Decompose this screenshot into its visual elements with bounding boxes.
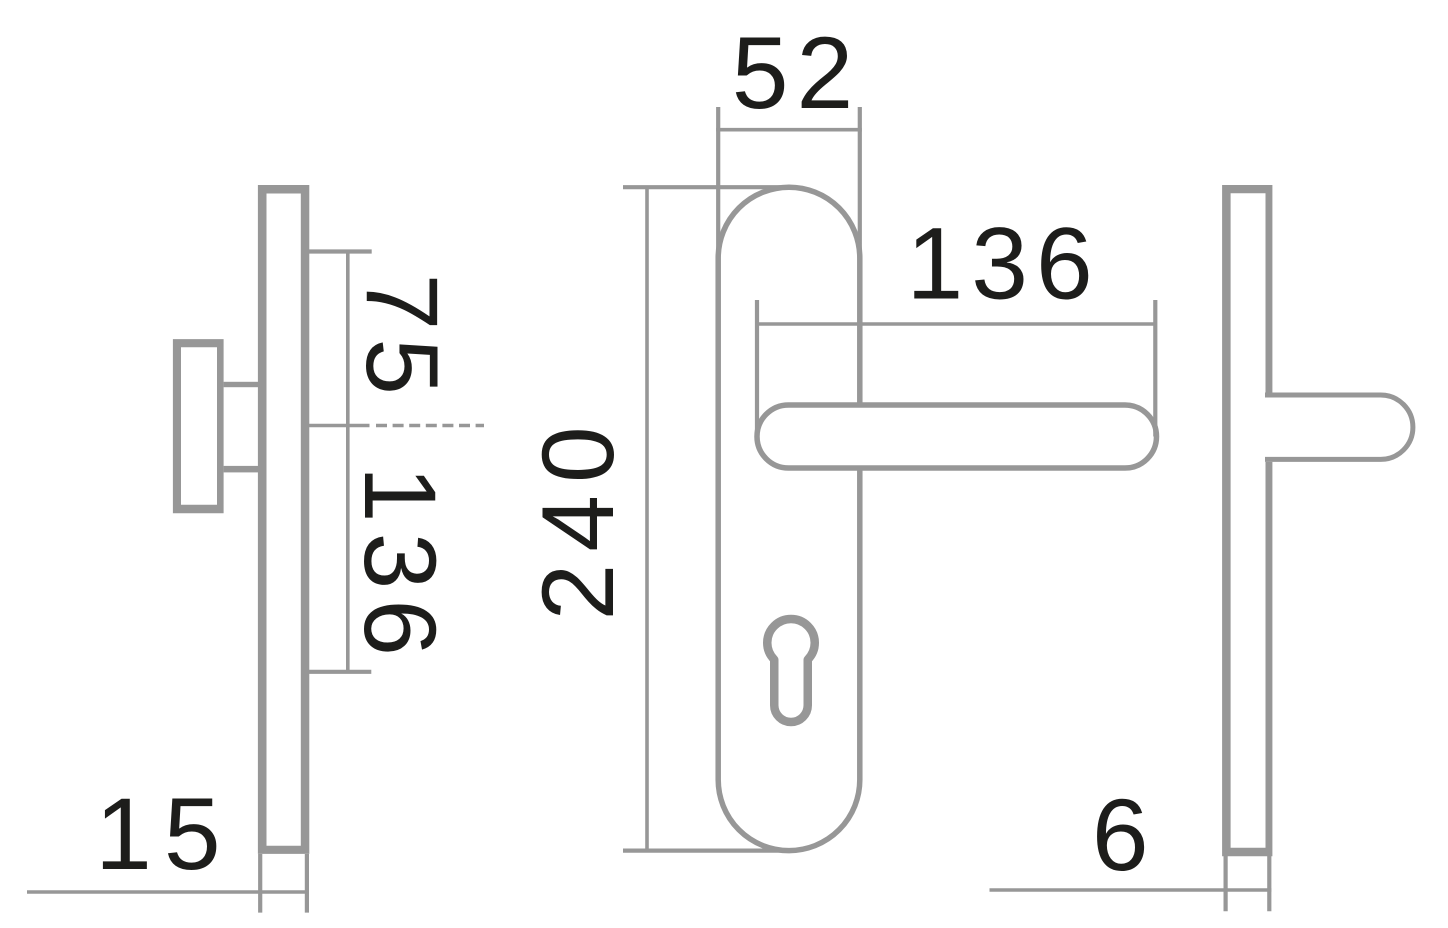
- svg-text:15: 15: [95, 777, 232, 891]
- svg-text:240: 240: [521, 414, 635, 620]
- svg-text:6: 6: [1092, 778, 1149, 892]
- svg-text:52: 52: [732, 16, 861, 130]
- svg-text:136: 136: [343, 466, 457, 666]
- svg-text:75: 75: [345, 273, 459, 402]
- svg-text:136: 136: [907, 207, 1101, 321]
